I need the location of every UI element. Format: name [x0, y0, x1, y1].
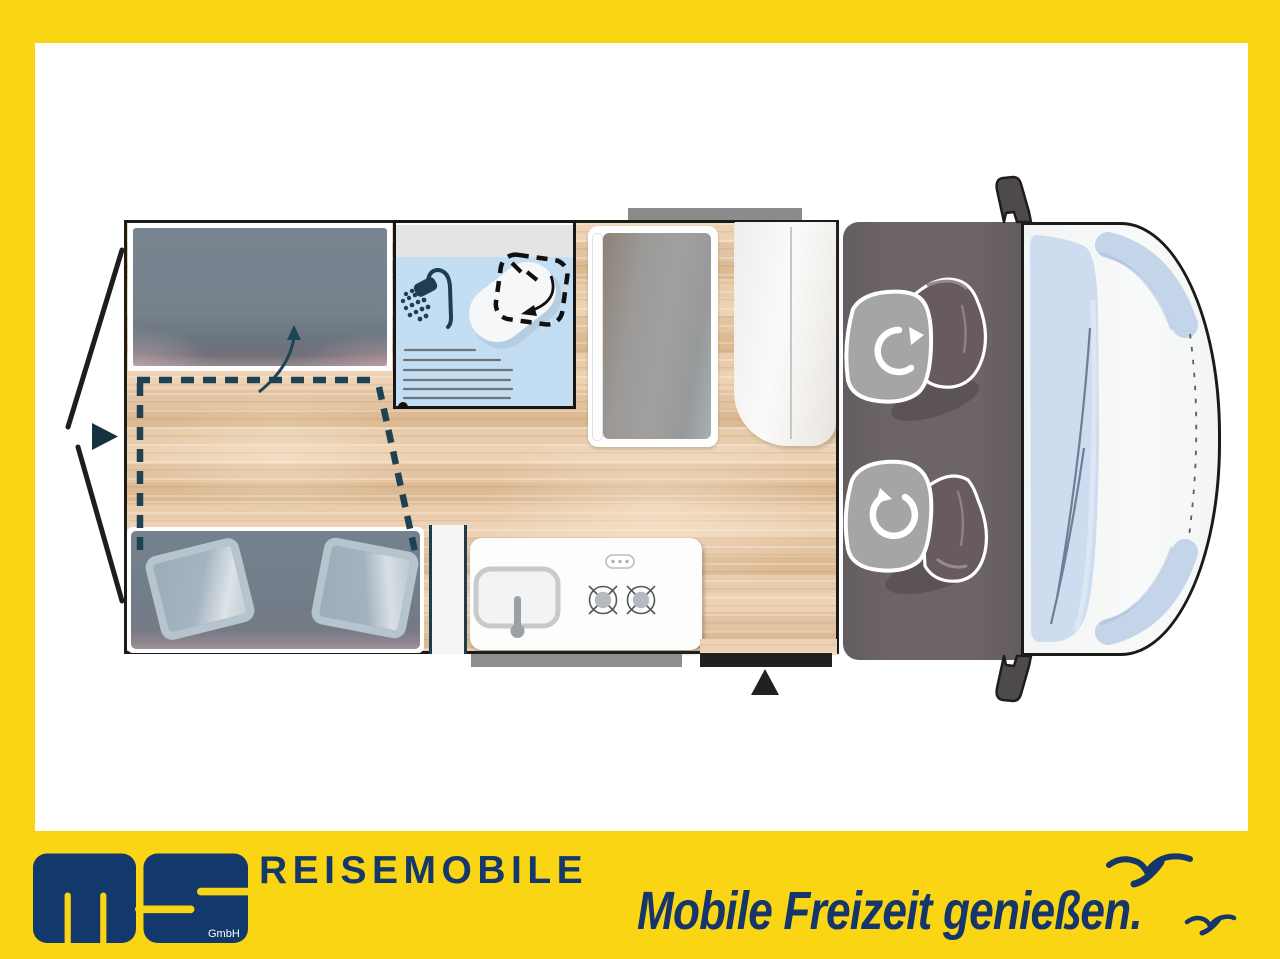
- svg-text:GmbH: GmbH: [208, 928, 240, 940]
